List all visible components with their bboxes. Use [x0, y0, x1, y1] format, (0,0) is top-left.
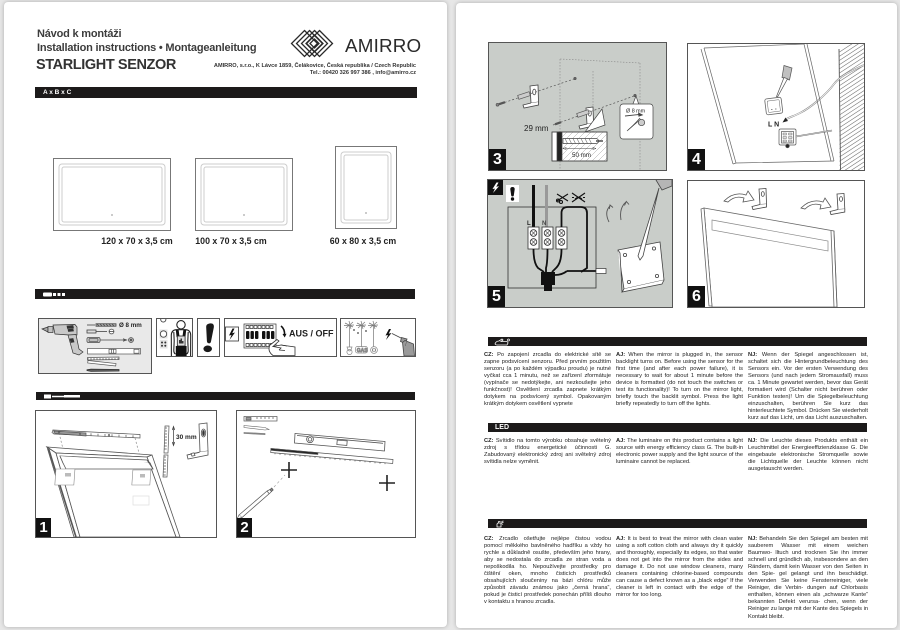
svg-text:Ø 8 mm: Ø 8 mm	[119, 322, 142, 329]
svg-text:N: N	[542, 221, 546, 227]
svg-text:L: L	[527, 221, 531, 227]
svg-text:Ø 8 mm: Ø 8 mm	[626, 109, 646, 115]
svg-text:30 mm: 30 mm	[176, 434, 197, 441]
svg-text:GAS: GAS	[357, 348, 369, 354]
svg-text:29 mm: 29 mm	[524, 124, 549, 133]
svg-text:AUS / OFF: AUS / OFF	[289, 329, 334, 339]
svg-text:50 mm: 50 mm	[572, 152, 591, 159]
svg-text:L N: L N	[768, 122, 779, 129]
